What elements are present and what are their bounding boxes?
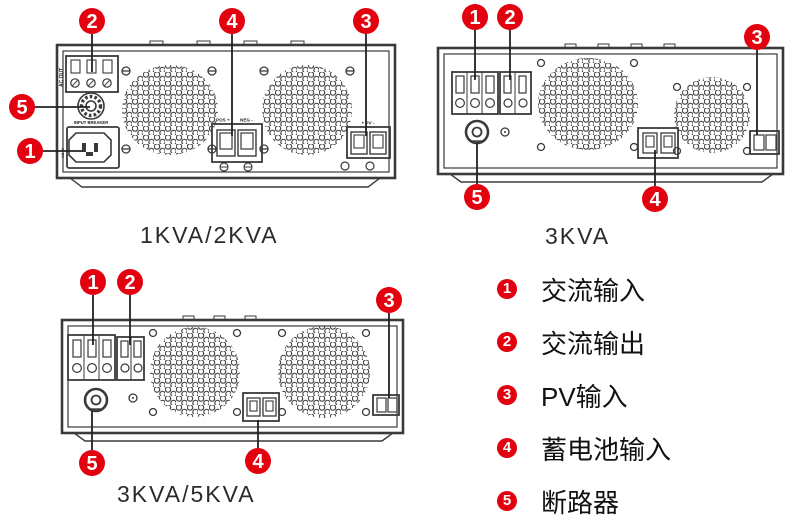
device-1kva-2kva-rear-panel: AC OUT INPUT BREAKER AC IN POS + NEG <box>35 34 395 187</box>
ac-input-breaker-block <box>68 335 115 380</box>
callout-number: 5 <box>16 97 27 119</box>
fan-grille <box>262 65 352 155</box>
pv-terminal <box>373 395 399 415</box>
callout-number: 3 <box>360 11 371 33</box>
legend: 1 交流输入 2 交流输出 3 PV输入 4 蓄电池输入 5 断路器 <box>497 0 787 530</box>
inverter-rear-panel-diagram: AC OUT INPUT BREAKER AC IN POS + NEG <box>0 0 790 530</box>
legend-item-pv-input: 3 PV输入 <box>497 379 628 411</box>
ac-out-label: AC OUT <box>59 68 65 87</box>
legend-label-circuit-breaker: 断路器 <box>541 483 619 520</box>
fan-grille <box>278 326 370 418</box>
fan-grille <box>122 65 218 155</box>
callout-number: 4 <box>226 11 238 33</box>
legend-badge-4: 4 <box>497 438 517 458</box>
ac-output-terminal: AC OUT <box>59 56 118 92</box>
fan-grille <box>150 327 240 417</box>
legend-item-ac-output: 2 交流输出 <box>497 326 645 358</box>
legend-label-battery-input: 蓄电池输入 <box>541 430 671 467</box>
pv-label: + PV - <box>362 121 375 126</box>
callout-number: 4 <box>252 451 264 473</box>
input-breaker-label: INPUT BREAKER <box>74 120 108 125</box>
callout-number: 3 <box>383 290 394 312</box>
callout-number: 5 <box>86 453 97 475</box>
battery-terminal: POS + NEG - <box>212 118 262 172</box>
legend-badge-3: 3 <box>497 385 517 405</box>
legend-label-ac-input: 交流输入 <box>541 271 645 308</box>
caption-3kva-5kva: 3KVA/5KVA <box>117 481 256 508</box>
legend-item-battery-input: 4 蓄电池输入 <box>497 432 671 464</box>
callout-number: 2 <box>124 272 135 294</box>
legend-label-pv-input: PV输入 <box>541 377 628 414</box>
chassis-base <box>70 178 380 187</box>
legend-badge-1: 1 <box>497 279 517 299</box>
callout-number: 5 <box>471 187 482 209</box>
ac-in-label: AC IN <box>61 148 65 158</box>
callout-number: 2 <box>86 11 97 33</box>
breaker-knob <box>85 389 137 411</box>
legend-label-ac-output: 交流输出 <box>541 324 645 361</box>
legend-badge-2: 2 <box>497 332 517 352</box>
battery-pos-label: POS + <box>216 118 230 123</box>
callout-number: 1 <box>24 141 35 163</box>
battery-neg-label: NEG - <box>240 118 253 123</box>
legend-item-ac-input: 1 交流输入 <box>497 273 645 305</box>
legend-item-circuit-breaker: 5 断路器 <box>497 485 619 517</box>
legend-badge-5: 5 <box>497 491 517 511</box>
device-3kva-5kva-rear-panel <box>62 295 403 450</box>
battery-terminal <box>243 393 279 421</box>
ac-input-socket: AC IN <box>61 127 119 168</box>
input-breaker-knob: INPUT BREAKER <box>74 93 108 125</box>
callout-number: 1 <box>87 272 98 294</box>
caption-1kva-2kva: 1KVA/2KVA <box>140 222 279 249</box>
callout-number: 1 <box>469 7 480 29</box>
